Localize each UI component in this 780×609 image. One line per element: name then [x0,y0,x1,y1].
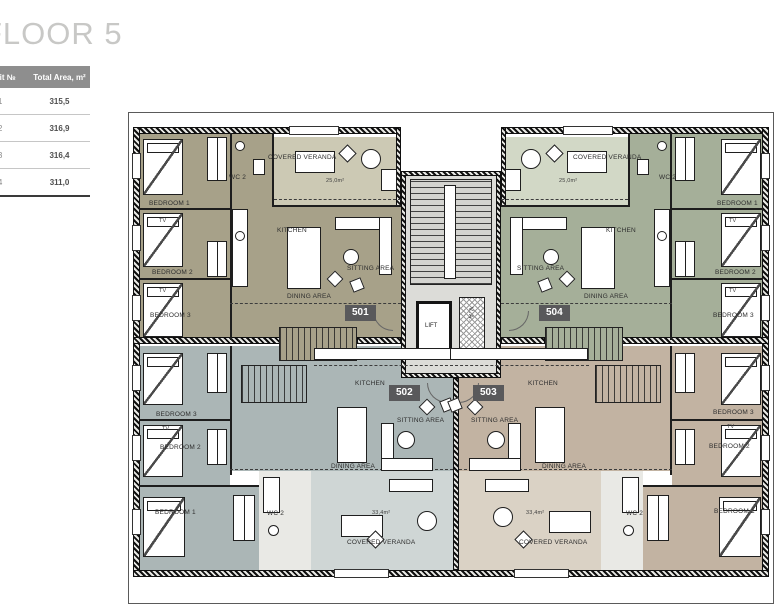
partition-wall [272,133,274,207]
sofa-icon [381,169,397,191]
room-label-bedroom3: BEDROOM 3 [150,313,191,320]
wall-segment [501,127,769,134]
window [514,569,569,578]
unit-area-table: Unit № Total Area, m² 501 315,5 502 316,… [0,66,90,197]
room-label-bedroom1: BEDROOM 1 [149,201,190,208]
coffee-table-icon [343,249,359,265]
room-label-bedroom3: BEDROOM 3 [156,412,197,419]
room-label-bedroom1: BEDROOM 1 [717,201,758,208]
room-label-veranda: COVERED VERANDA [519,540,587,547]
room-label-sitting: SITTING AREA [397,418,444,425]
dashed-boundary [501,199,628,200]
room-label-dining: DINING AREA [331,464,375,471]
sofa-icon [505,169,521,191]
floor-plan-page: FLOOR 5 Unit № Total Area, m² 501 315,5 … [0,0,780,609]
bathtub-icon [622,477,639,513]
room-label-sitting: SITTING AREA [517,266,564,273]
bed-icon [143,497,185,557]
wall-segment [501,127,506,207]
veranda-area-label: 25,0m² [559,179,577,185]
kitchen-counter-icon [314,348,452,360]
partition-wall [274,205,401,207]
room-label-wc: WC 2 [267,511,284,518]
wardrobe-icon [647,495,669,541]
window [761,153,770,179]
table-cell-area: 315,5 [29,97,90,106]
room-label-bedroom1: BEDROOM 1 [714,509,755,516]
window [334,569,389,578]
partition-wall [139,208,230,210]
partition-wall [670,133,672,340]
room-label-wc: WC 2 [626,511,643,518]
room-label-dining: DINING AREA [287,294,331,301]
bed-icon [721,139,761,195]
wall-segment [133,570,769,577]
room-label-bedroom2: BEDROOM 2 [152,270,193,277]
lounge-table-icon [361,149,381,169]
window [761,365,770,391]
partition-wall [670,346,672,475]
partition-wall [672,278,763,280]
window [761,435,770,461]
room-label-bedroom2: BEDROOM 2 [709,444,750,451]
room-label-veranda: COVERED VERANDA [347,540,415,547]
bed-icon [143,353,183,405]
tv-label: TV [729,219,736,225]
table-header-row: Unit № Total Area, m² [0,66,90,88]
dining-table-icon [287,227,321,289]
wardrobe-icon [207,241,227,277]
table-header-area: Total Area, m² [29,73,90,82]
unit-number-badge: 501 [345,305,376,321]
partition-wall [643,485,763,487]
kitchen-counter-icon [654,209,670,287]
wall-segment [501,337,545,344]
dashed-boundary [501,303,672,304]
bed-icon [721,213,761,267]
veranda-area-label: 33,4m² [372,511,390,517]
toilet-icon [623,525,634,536]
dashed-boundary [450,365,589,366]
wall-segment [401,171,501,176]
wall-segment [619,337,769,344]
window [289,126,339,135]
partition-wall [501,205,628,207]
lift-label: LIFT [425,323,437,329]
vent-shaft-label: V.A. [467,307,473,322]
room-label-dining: DINING AREA [542,464,586,471]
window [132,365,141,391]
coffee-table-icon [543,249,559,265]
window [132,509,141,535]
wall-segment [401,171,406,378]
bed-icon [721,283,761,337]
room-label-bedroom3: BEDROOM 3 [713,410,754,417]
wardrobe-icon [207,137,227,181]
table-row: 504 311,0 [0,169,90,197]
window [563,126,613,135]
dining-table-icon [535,407,565,463]
tv-label: TV [159,219,166,225]
unit-number-badge: 504 [539,305,570,321]
room-label-bedroom3: BEDROOM 3 [713,313,754,320]
partition-wall [139,485,259,487]
bed-icon [721,425,761,477]
sofa-icon [389,479,433,492]
room-label-bedroom2: BEDROOM 2 [715,270,756,277]
partition-wall [230,346,232,475]
wardrobe-icon [675,137,695,181]
unit-number-badge: 503 [473,385,504,401]
partition-wall [628,133,630,207]
toilet-icon [268,525,279,536]
stairs [241,365,307,403]
partition-wall [139,278,230,280]
kitchen-counter-icon [450,348,588,360]
wardrobe-icon [675,241,695,277]
room-label-veranda: COVERED VERANDA [268,155,336,162]
ventilation-shaft [459,297,485,353]
window [132,435,141,461]
sofa-icon [469,458,521,471]
wall-segment [133,127,401,134]
wardrobe-icon [675,429,695,465]
window [761,225,770,251]
wall-segment [357,337,401,344]
room-label-bedroom2: BEDROOM 2 [160,445,201,452]
dashed-boundary [230,303,401,304]
window [761,295,770,321]
tv-label: TV [727,425,734,431]
table-cell-area: 316,4 [29,151,90,160]
table-cell-area: 311,0 [29,178,90,187]
wardrobe-icon [207,353,227,393]
bed-icon [719,497,761,557]
tv-label: TV [729,289,736,295]
partition-wall [672,208,763,210]
window [132,295,141,321]
room-label-kitchen: KITCHEN [606,228,636,235]
lounge-table-icon [493,507,513,527]
wall-segment [401,373,501,378]
room-label-bedroom1: BEDROOM 1 [155,510,196,517]
lounge-table-icon [521,149,541,169]
table-header-unit: Unit № [0,73,29,82]
dining-table-icon [337,407,367,463]
window [132,225,141,251]
room-label-dining: DINING AREA [584,294,628,301]
dining-table-icon [581,227,615,289]
table-cell-unit: 501 [0,97,29,106]
lounge-table-icon [417,511,437,531]
floor-plan-drawing: BEDROOM 1 BEDROOM 2 BEDROOM 3 TV TV WC 2… [128,112,774,604]
veranda-area-label: 33,4m² [526,511,544,517]
room-label-sitting: SITTING AREA [347,266,394,273]
table-cell-unit: 502 [0,124,29,133]
dashed-boundary [274,199,401,200]
bathtub-icon [263,477,280,513]
toilet-icon [253,159,265,175]
room-label-veranda: COVERED VERANDA [573,155,641,162]
window [132,153,141,179]
bed-icon [143,139,183,195]
tv-label: TV [159,289,166,295]
veranda-area-label: 25,0m² [326,179,344,185]
wall-segment [133,337,283,344]
tv-label: TV [162,427,169,433]
dashed-boundary [314,365,453,366]
table-cell-area: 316,9 [29,124,90,133]
partition-wall [139,419,230,421]
sink-icon [657,141,667,151]
sofa-icon [381,458,433,471]
page-title: FLOOR 5 [0,16,123,52]
room-label-wc: WC 2 [659,175,676,182]
veranda-table-icon [549,511,591,533]
sofa-icon [485,479,529,492]
sink-icon [235,141,245,151]
sink-icon [235,231,245,241]
wardrobe-icon [233,495,255,541]
table-cell-unit: 503 [0,151,29,160]
unit-number-badge: 502 [389,385,420,401]
table-row: 501 315,5 [0,88,90,115]
stairs [595,365,661,403]
sink-icon [657,231,667,241]
table-row: 503 316,4 [0,142,90,169]
table-row: 502 316,9 [0,115,90,142]
room-label-kitchen: KITCHEN [355,381,385,388]
table-cell-unit: 504 [0,178,29,187]
wall-segment [396,127,401,207]
room-label-sitting: SITTING AREA [471,418,518,425]
window [761,509,770,535]
coffee-table-icon [397,431,415,449]
wardrobe-icon [675,353,695,393]
kitchen-counter-icon [232,209,248,287]
room-label-kitchen: KITCHEN [277,228,307,235]
core-stair-stringer [444,185,456,279]
bed-icon [721,353,761,405]
partition-wall [672,419,763,421]
coffee-table-icon [487,431,505,449]
room-label-kitchen: KITCHEN [528,381,558,388]
room-label-wc: WC 2 [229,175,246,182]
wardrobe-icon [207,429,227,465]
